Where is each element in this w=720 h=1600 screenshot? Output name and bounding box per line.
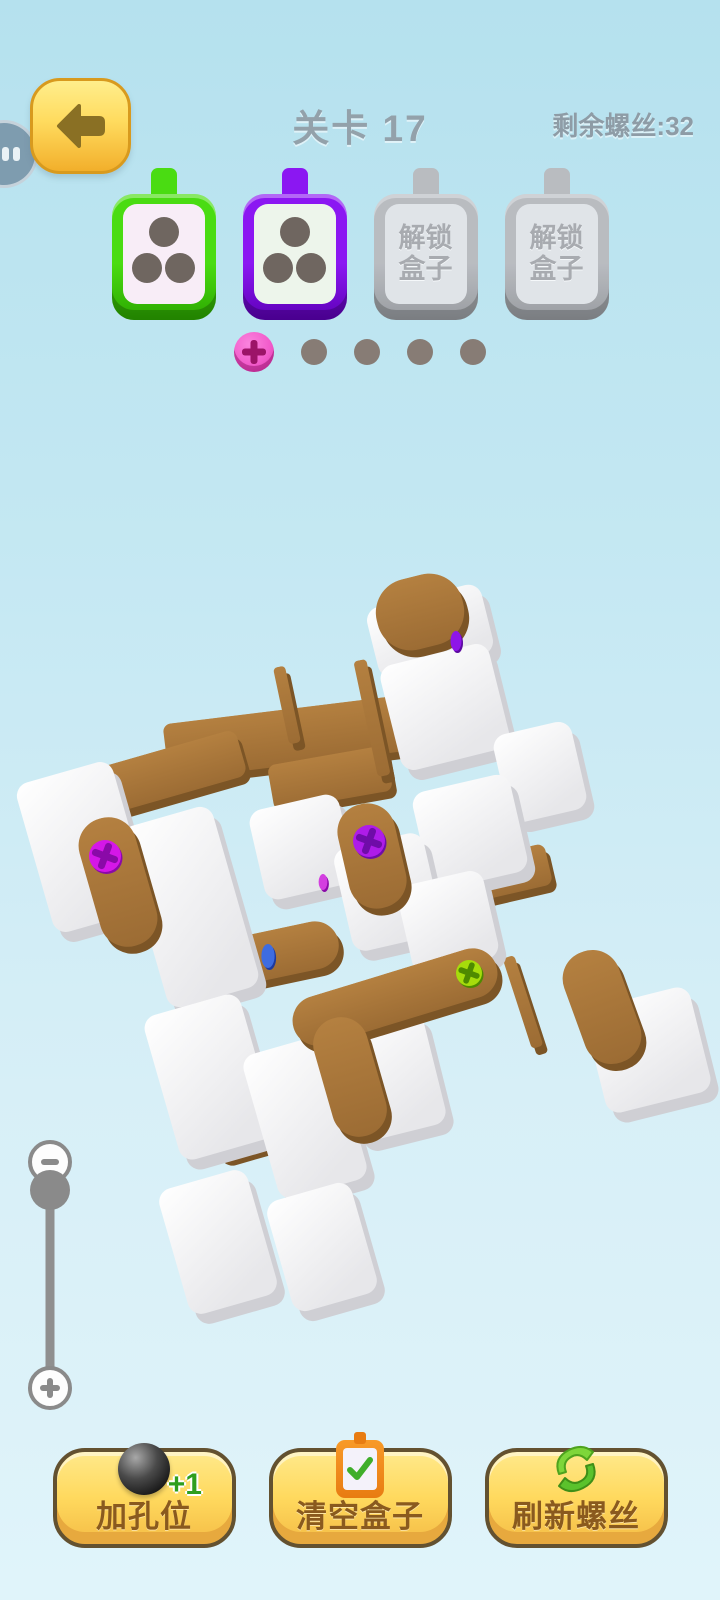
- white-block: [156, 1167, 280, 1317]
- zoom-in-button[interactable]: [28, 1366, 72, 1410]
- puzzle-scene[interactable]: [0, 0, 720, 1600]
- zoom-slider[interactable]: [28, 1140, 72, 1410]
- plus-one-badge: +1: [168, 1468, 202, 1502]
- plus-icon: [40, 1378, 60, 1398]
- add-hole-button[interactable]: +1 加孔位: [53, 1448, 236, 1548]
- refresh-leaves-icon: [547, 1440, 605, 1498]
- wood-plank: [503, 955, 544, 1049]
- zoom-slider-track[interactable]: [46, 1180, 55, 1392]
- minus-icon: [41, 1159, 59, 1165]
- action-button-row: +1 加孔位 清空盒子 刷新螺丝: [0, 1448, 720, 1548]
- clipboard-check-icon: [336, 1440, 384, 1498]
- refresh-screws-button[interactable]: 刷新螺丝: [485, 1448, 668, 1548]
- clear-box-button[interactable]: 清空盒子: [269, 1448, 452, 1548]
- black-ball-icon: [118, 1443, 170, 1495]
- zoom-slider-knob[interactable]: [30, 1170, 70, 1210]
